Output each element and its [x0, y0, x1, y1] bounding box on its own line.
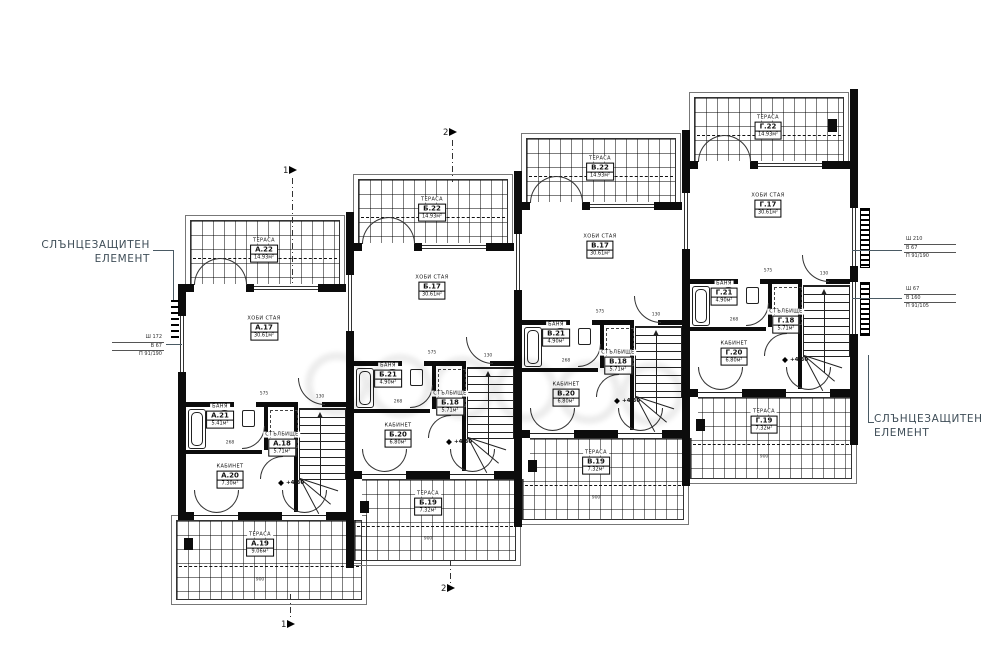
- room-number: В.21: [543, 330, 569, 339]
- room-tag-box: Г.197.32м²: [751, 416, 778, 434]
- room-label-cabinet: КАБИНЕТБ.206.80м²: [383, 423, 414, 448]
- room-area: 5.71м²: [774, 326, 799, 333]
- dimension-label: 575: [428, 351, 437, 356]
- wall: [514, 210, 522, 234]
- room-number: А.20: [217, 472, 243, 481]
- room-number: А.21: [207, 412, 233, 421]
- room-number: В.17: [587, 242, 613, 251]
- level-value: +4.30: [790, 357, 808, 363]
- schedule-line: П 91/190: [904, 252, 956, 261]
- room-area: 14.93м²: [251, 255, 277, 262]
- schedule-line: В 67: [904, 244, 956, 253]
- room-tag-box: А.207.30м²: [216, 471, 244, 489]
- schedule-line: П 91/190: [112, 350, 164, 359]
- room-name: КАБИНЕТ: [719, 341, 750, 347]
- staircase-arrow-head: [653, 330, 659, 336]
- staircase-arrow: [824, 295, 825, 373]
- wall: [238, 512, 282, 520]
- door-threshold: [194, 515, 238, 516]
- room-name: СТЪЛБИЩЕ: [599, 350, 636, 356]
- schedule-line: Ш 210: [904, 236, 956, 244]
- room-area: 9.06м²: [247, 549, 273, 556]
- window: [346, 275, 354, 331]
- toilet: [578, 328, 591, 345]
- bathtub: [188, 409, 206, 449]
- sunshade-note-left-line2: ЕЛЕМЕНТ: [40, 252, 150, 266]
- room-label-stair: СТЪЛБИЩЕА.185.71м²: [263, 432, 300, 457]
- level-diamond-icon: [446, 439, 452, 445]
- wall: [582, 202, 590, 210]
- section-flag-icon: [447, 584, 455, 592]
- toilet: [746, 287, 759, 304]
- leader-line: [868, 355, 869, 423]
- room-tag-box: Г.206.80м²: [721, 348, 748, 366]
- room-name: БАНЯ: [546, 322, 566, 328]
- sunshade-note-right-line2: ЕЛЕМЕНТ: [874, 426, 994, 440]
- terrace-pier: [528, 460, 537, 472]
- staircase-treads: [803, 285, 850, 357]
- section-mark-2-top: 2: [443, 128, 457, 138]
- room-label-cabinet: КАБИНЕТГ.206.80м²: [719, 341, 750, 366]
- room-label-terrace_bottom: ТЕРАСАБ.197.32м²: [414, 491, 442, 516]
- wall: [514, 202, 522, 210]
- wall: [742, 389, 786, 397]
- dimension-label: 130: [484, 354, 493, 359]
- schedule-line: В 67: [112, 342, 164, 351]
- room-area: 4.90м²: [543, 339, 569, 346]
- room-tag-box: В.2214.93м²: [586, 163, 614, 181]
- room-number: А.18: [269, 440, 295, 449]
- staircase-treads: [299, 408, 346, 480]
- wall: [178, 450, 262, 454]
- room-tag-box: Б.206.80м²: [384, 430, 412, 448]
- window: [422, 243, 486, 251]
- leader-line: [852, 250, 902, 251]
- room-area: 14.93м²: [419, 214, 445, 221]
- room-area: 5.71м²: [269, 449, 295, 456]
- room-number: Г.19: [752, 417, 777, 426]
- door-threshold: [282, 515, 326, 516]
- room-name: КАБИНЕТ: [383, 423, 414, 429]
- door-threshold: [786, 392, 830, 393]
- room-label-terrace_top: ТЕРАСАБ.2214.93м²: [418, 197, 446, 222]
- room-tag-box: А.215.41м²: [206, 411, 234, 429]
- room-number: В.18: [605, 358, 631, 367]
- room-label-terrace_top: ТЕРАСАВ.2214.93м²: [586, 156, 614, 181]
- door-threshold: [530, 433, 574, 434]
- wall: [346, 471, 362, 479]
- section-number: 1: [281, 620, 286, 630]
- room-number: Б.22: [419, 205, 445, 214]
- room-name: ТЕРАСА: [251, 238, 277, 244]
- room-label-cabinet: КАБИНЕТА.207.30м²: [215, 464, 246, 489]
- party-wall: [850, 389, 858, 445]
- wall: [178, 292, 186, 316]
- room-tag-box: А.1730.61м²: [250, 323, 278, 341]
- window: [682, 193, 690, 249]
- window-schedule-right-bottom: Ш 67 В 160 П 91/105: [904, 286, 956, 311]
- section-number: 2: [443, 128, 448, 138]
- room-tag-box: А.2214.93м²: [250, 245, 278, 263]
- dimension-label: 268: [226, 441, 235, 446]
- wall: [346, 251, 354, 275]
- room-number: В.19: [583, 458, 609, 467]
- sunshade-element-right: [860, 208, 870, 268]
- room-tag-box: Б.1730.61м²: [418, 282, 446, 300]
- section-number: 1: [283, 166, 288, 176]
- room-name: ТЕРАСА: [755, 115, 781, 121]
- party-wall: [346, 479, 354, 559]
- leader-line: [852, 298, 902, 299]
- wall: [178, 512, 194, 520]
- leader-line: [166, 344, 182, 345]
- section-number: 2: [441, 584, 446, 594]
- door-threshold: [698, 392, 742, 393]
- leader-line: [868, 422, 874, 423]
- room-label-bath: БАНЯА.215.41м²: [206, 404, 234, 429]
- room-label-terrace_top: ТЕРАСАГ.2214.93м²: [755, 115, 782, 140]
- room-tag-box: В.197.32м²: [582, 457, 610, 475]
- wall: [760, 279, 802, 284]
- sunshade-element-left: [171, 300, 179, 338]
- room-label-hobby: ХОБИ СТАЯА.1730.61м²: [245, 316, 282, 341]
- section-flag-icon: [287, 620, 295, 628]
- room-name: СТЪЛБИЩЕ: [767, 309, 804, 315]
- section-flag-icon: [289, 166, 297, 174]
- level-mark: +4.30: [446, 439, 472, 445]
- room-name: ХОБИ СТАЯ: [749, 193, 786, 199]
- wall: [592, 320, 634, 325]
- room-number: А.19: [247, 540, 273, 549]
- room-tag-box: Г.185.71м²: [773, 316, 800, 334]
- leader-line: [153, 250, 173, 251]
- schedule-line: В 160: [904, 294, 956, 303]
- room-name: БАНЯ: [210, 404, 230, 410]
- staircase-arrow: [320, 418, 321, 496]
- room-name: ХОБИ СТАЯ: [581, 234, 618, 240]
- terrace-pier: [184, 538, 193, 550]
- window: [850, 208, 858, 266]
- window: [514, 234, 522, 290]
- room-tag-box: Б.197.32м²: [414, 498, 442, 516]
- level-diamond-icon: [782, 357, 788, 363]
- room-label-hobby: ХОБИ СТАЯВ.1730.61м²: [581, 234, 618, 259]
- room-name: ТЕРАСА: [247, 532, 273, 538]
- dimension-label: 900: [760, 455, 769, 460]
- level-mark: +4.30: [278, 480, 304, 486]
- wall: [178, 284, 186, 292]
- room-number: В.22: [587, 164, 613, 173]
- room-tag-box: А.185.71м²: [268, 439, 296, 457]
- wall: [256, 402, 298, 407]
- room-label-bath: БАНЯГ.214.90м²: [711, 281, 738, 306]
- room-area: 7.32м²: [752, 426, 777, 433]
- room-label-terrace_bottom: ТЕРАСАГ.197.32м²: [751, 409, 778, 434]
- toilet: [242, 410, 255, 427]
- wall: [682, 161, 690, 169]
- room-area: 6.80м²: [385, 440, 411, 447]
- terrace-pier: [828, 119, 837, 132]
- section-mark-1-bottom: 1: [281, 620, 295, 630]
- leader-line: [173, 250, 174, 300]
- room-label-terrace_top: ТЕРАСАА.2214.93м²: [250, 238, 278, 263]
- dimension-label: 575: [260, 392, 269, 397]
- wall: [850, 334, 858, 397]
- room-name: ТЕРАСА: [415, 491, 441, 497]
- room-name: КАБИНЕТ: [215, 464, 246, 470]
- window: [590, 202, 654, 210]
- room-label-terrace_bottom: ТЕРАСАА.199.06м²: [246, 532, 274, 557]
- window-schedule-left: Ш 172 В 67 П 91/190: [112, 334, 164, 359]
- wall: [682, 169, 690, 193]
- room-number: Г.18: [774, 317, 799, 326]
- room-area: 30.61м²: [251, 333, 277, 340]
- section-line: [292, 178, 293, 283]
- window: [254, 284, 318, 292]
- room-area: 4.90м²: [712, 298, 737, 305]
- window: [758, 161, 822, 169]
- wall: [682, 389, 698, 397]
- room-area: 7.30м²: [217, 481, 243, 488]
- room-tag-box: В.214.90м²: [542, 329, 570, 347]
- room-area: 30.61м²: [587, 251, 613, 258]
- room-label-bath: БАНЯВ.214.90м²: [542, 322, 570, 347]
- sunshade-element-right: [860, 282, 870, 336]
- section-line: [450, 560, 451, 584]
- room-number: А.17: [251, 324, 277, 333]
- dimension-label: 130: [652, 313, 661, 318]
- room-tag-box: Б.2214.93м²: [418, 204, 446, 222]
- level-diamond-icon: [278, 480, 284, 486]
- room-name: ТЕРАСА: [419, 197, 445, 203]
- room-name: ТЕРАСА: [751, 409, 777, 415]
- wall: [750, 161, 758, 169]
- room-area: 30.61м²: [756, 210, 781, 217]
- door-threshold: [362, 474, 406, 475]
- level-value: +4.30: [286, 480, 304, 486]
- section-line: [290, 594, 291, 620]
- dimension-label: 268: [730, 318, 739, 323]
- sunshade-note-left-line1: СЛЪНЦЕЗАЩИТЕН: [40, 238, 150, 252]
- wall: [682, 249, 690, 397]
- room-name: СТЪЛБИЩЕ: [263, 432, 300, 438]
- schedule-line: П 91/105: [904, 302, 956, 311]
- party-wall: [682, 397, 690, 477]
- wall: [682, 327, 766, 331]
- wall: [514, 430, 530, 438]
- room-area: 14.93м²: [756, 132, 781, 139]
- section-mark-2-bottom: 2: [441, 584, 455, 594]
- bathtub: [692, 286, 710, 326]
- room-area: 5.41м²: [207, 421, 233, 428]
- room-number: Г.22: [756, 123, 781, 132]
- room-number: А.22: [251, 246, 277, 255]
- room-name: ТЕРАСА: [583, 450, 609, 456]
- dimension-label: 130: [820, 272, 829, 277]
- schedule-line: Ш 67: [904, 286, 956, 294]
- dimension-label: 900: [256, 578, 265, 583]
- wall: [406, 471, 450, 479]
- wall: [850, 89, 858, 208]
- floor-plan-canvas: СЛЪНЦЕЗАЩИТЕН ЕЛЕМЕНТ СЛЪНЦЕЗАЩИТЕН ЕЛЕМ…: [0, 0, 1000, 666]
- room-tag-box: А.199.06м²: [246, 539, 274, 557]
- terrace-pier: [360, 501, 369, 513]
- wall: [346, 243, 354, 251]
- room-number: Б.20: [385, 431, 411, 440]
- wall: [414, 243, 422, 251]
- dimension-label: 900: [592, 496, 601, 501]
- room-tag-box: Г.214.90м²: [711, 288, 738, 306]
- section-mark-1-top: 1: [283, 166, 297, 176]
- room-name: ТЕРАСА: [587, 156, 613, 162]
- room-number: Б.19: [415, 499, 441, 508]
- terrace-pier: [696, 419, 705, 431]
- room-label-terrace_bottom: ТЕРАСАВ.197.32м²: [582, 450, 610, 475]
- wall: [178, 372, 186, 520]
- room-number: Г.17: [756, 201, 781, 210]
- room-name: ХОБИ СТАЯ: [413, 275, 450, 281]
- room-area: 7.32м²: [583, 467, 609, 474]
- room-name: ХОБИ СТАЯ: [245, 316, 282, 322]
- door-threshold: [450, 474, 494, 475]
- room-tag-box: Г.2214.93м²: [755, 122, 782, 140]
- room-area: 14.93м²: [587, 173, 613, 180]
- room-tag-box: В.1730.61м²: [586, 241, 614, 259]
- room-label-hobby: ХОБИ СТАЯГ.1730.61м²: [749, 193, 786, 218]
- room-area: 6.80м²: [722, 358, 747, 365]
- window-schedule-right-top: Ш 210 В 67 П 91/190: [904, 236, 956, 261]
- party-wall: [514, 438, 522, 518]
- dimension-label: 900: [424, 537, 433, 542]
- room-name: БАНЯ: [714, 281, 734, 287]
- staircase-arrow-head: [317, 412, 323, 418]
- dimension-label: 575: [596, 310, 605, 315]
- wall: [574, 430, 618, 438]
- room-number: Б.17: [419, 283, 445, 292]
- room-number: Г.20: [722, 349, 747, 358]
- staircase-arrow-head: [821, 289, 827, 295]
- sunshade-note-right-line1: СЛЪНЦЕЗАЩИТЕН: [874, 412, 994, 426]
- dimension-label: 268: [562, 359, 571, 364]
- door-threshold: [618, 433, 662, 434]
- sunshade-note-right: СЛЪНЦЕЗАЩИТЕН ЕЛЕМЕНТ: [874, 412, 994, 440]
- schedule-line: Ш 172: [112, 334, 164, 342]
- window: [850, 282, 858, 334]
- level-value: +4.30: [454, 439, 472, 445]
- room-label-stair: СТЪЛБИЩЕГ.185.71м²: [767, 309, 804, 334]
- sunshade-note-left: СЛЪНЦЕЗАЩИТЕН ЕЛЕМЕНТ: [40, 238, 150, 266]
- section-flag-icon: [449, 128, 457, 136]
- room-tag-box: Г.1730.61м²: [755, 200, 782, 218]
- room-area: 7.32м²: [415, 508, 441, 515]
- room-number: Г.21: [712, 289, 737, 298]
- section-line: [452, 140, 453, 182]
- wall: [246, 284, 254, 292]
- level-mark: +4.30: [782, 357, 808, 363]
- room-area: 30.61м²: [419, 292, 445, 299]
- dimension-label: 575: [764, 269, 773, 274]
- room-label-hobby: ХОБИ СТАЯБ.1730.61м²: [413, 275, 450, 300]
